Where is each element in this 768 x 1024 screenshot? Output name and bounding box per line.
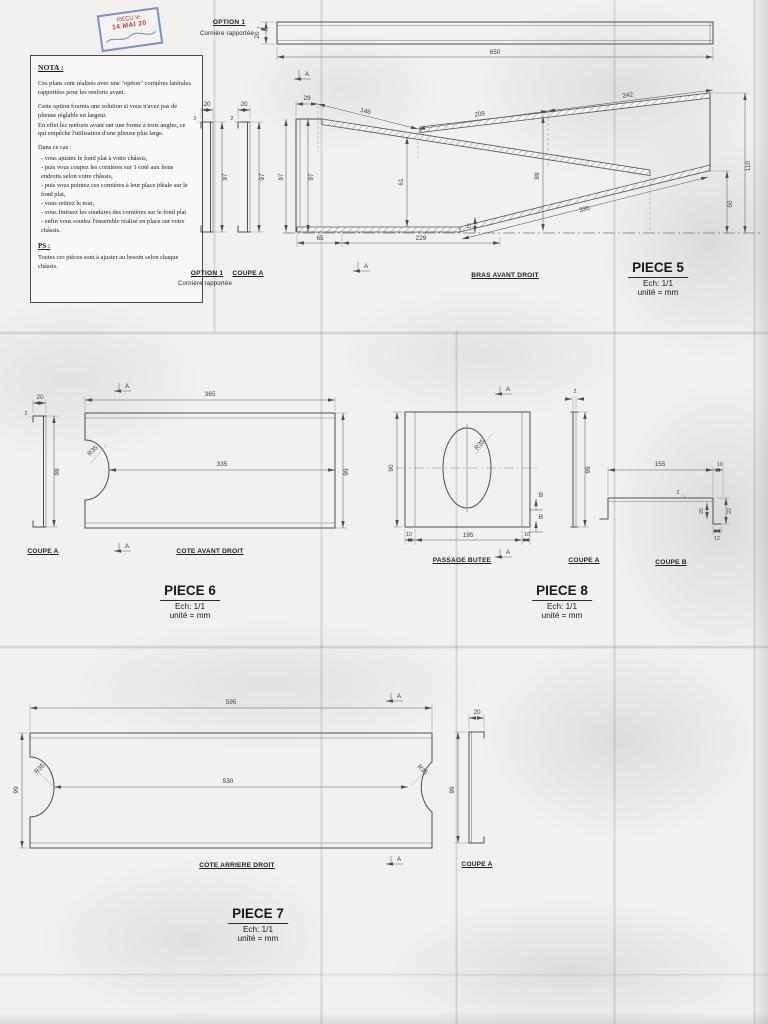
scanned-drawing-page: REÇU le 14 MAI 20 NOTA : Ces plans sont … (0, 0, 768, 1024)
dim-p6-coupe-width: 20 (36, 394, 44, 401)
piece8-unit: unité = mm (532, 611, 592, 620)
passage-butee-drawing: R35 90 10 195 10 B B A A (388, 386, 543, 557)
piece7-coupe-a-profile: 20 99 (449, 709, 484, 843)
dim-p7-height: 99 (13, 786, 20, 794)
dim-bras-top4: 242 (622, 91, 634, 99)
dim-p6-height: 99 (343, 468, 350, 476)
dim-profile2-thickness: 2 (231, 116, 234, 122)
piece5-title: PIECE 5 (628, 261, 688, 278)
piece6-coupe-a-profile: 20 2 99 (25, 394, 61, 527)
piece8-coupe-b-profile: 155 10 2 20 22 12 (600, 461, 733, 542)
cote-avant-droit-drawing: 365 335 R35 99 A A (85, 383, 350, 551)
dim-p6-coupe-height: 99 (54, 468, 61, 476)
dim-p7-mid: 530 (223, 778, 234, 785)
dim-bras-left2: 97 (308, 173, 315, 181)
section-marker-letter: A (506, 386, 511, 393)
cote-arriere-droit-drawing: 595 530 R35 R35 99 A A (13, 693, 432, 864)
dim-p8-height: 90 (388, 464, 395, 472)
dim-p8-coupea-height: 99 (585, 466, 592, 474)
dim-p8-coupeb-top: 155 (655, 461, 666, 468)
dim-bras-small: 15 (467, 223, 473, 229)
piece6-unit: unité = mm (160, 611, 220, 620)
dim-bar-thickness: 20 (254, 31, 261, 39)
dim-p8-coupea-thickness: 2 (574, 389, 577, 395)
corniere-bar-top-view: 20 650 A (254, 22, 713, 79)
dim-p6-top: 365 (205, 391, 216, 398)
cote-arriere-droit-label: COTE ARRIERE DROIT (199, 862, 275, 869)
bras-avant-droit-label: BRAS AVANT DROIT (471, 272, 539, 279)
section-marker-letter: A (364, 263, 369, 270)
dim-profile1-thickness: 2 (194, 116, 197, 122)
dim-bras-bot2: 229 (416, 235, 427, 242)
piece6-coupe-a-label: COUPE A (27, 548, 58, 555)
section-marker-letter: B (539, 514, 543, 521)
piece5-title-block: PIECE 5 Ech: 1/1 unité = mm (628, 259, 688, 297)
piece6-title: PIECE 6 (160, 584, 220, 601)
dim-p8-bot-right: 10 (524, 532, 530, 538)
dim-bras-mid1: 61 (398, 178, 405, 186)
dim-bras-top3: 205 (474, 110, 486, 118)
piece7-title: PIECE 7 (228, 907, 288, 924)
dim-bar-length: 650 (490, 49, 501, 56)
dim-bras-right2: 60 (727, 200, 734, 208)
dim-bras-mid2: 89 (534, 172, 541, 180)
dim-p7-coupe-height: 99 (449, 786, 456, 794)
section-marker-letter: A (125, 543, 130, 550)
dim-profile2-width: 20 (240, 101, 248, 108)
dim-p8-coupeb-v-outer: 22 (727, 508, 733, 514)
piece5-profile-option: 20 2 97 (194, 101, 229, 232)
profile1-sublabel: Cornière rapportée (178, 281, 232, 287)
technical-linework: 20 650 A 20 2 97 (0, 0, 768, 1024)
dim-p8-coupeb-v-inner: 20 (699, 508, 705, 514)
cote-avant-droit-label: COTE AVANT DROIT (176, 548, 243, 555)
profile1-label: OPTION 1 (191, 270, 223, 277)
section-marker-letter: A (397, 693, 402, 700)
dim-p7-top: 595 (226, 699, 237, 706)
dim-profile1-width: 20 (203, 101, 211, 108)
section-marker-letter: A (397, 856, 402, 863)
piece8-title: PIECE 8 (532, 584, 592, 601)
dim-bras-top1: 29 (303, 95, 311, 102)
option1-top-label: OPTION 1 (213, 19, 245, 26)
dim-p8-coupeb-foot: 12 (714, 536, 720, 542)
dim-p8-bot-mid: 195 (463, 532, 474, 539)
dim-p6-radius: R35 (86, 444, 100, 458)
piece8-title-block: PIECE 8 Ech: 1/1 unité = mm (532, 582, 592, 620)
piece7-unit: unité = mm (228, 934, 288, 943)
dim-profile1-height: 97 (222, 173, 229, 181)
piece5-scale: Ech: 1/1 (628, 279, 688, 288)
piece8-coupe-b-label: COUPE B (655, 559, 686, 566)
option1-top-sublabel: Cornière rapportée (200, 31, 254, 37)
dim-bras-left1: 97 (278, 173, 285, 181)
piece5-unit: unité = mm (628, 288, 688, 297)
piece7-title-block: PIECE 7 Ech: 1/1 unité = mm (228, 905, 288, 943)
dim-bras-bot1: 65 (316, 235, 324, 242)
dim-p7-coupe-width: 20 (473, 709, 481, 716)
piece7-scale: Ech: 1/1 (228, 925, 288, 934)
piece5-profile-coupe-a: 20 2 97 (231, 101, 266, 232)
profile2-label: COUPE A (232, 270, 263, 277)
dim-p8-coupeb-thickness: 2 (677, 490, 680, 496)
piece7-coupe-a-label: COUPE A (461, 861, 492, 868)
section-marker-letter: A (305, 71, 310, 78)
dim-profile2-height: 97 (259, 173, 266, 181)
dim-p8-coupeb-top-right: 10 (717, 462, 723, 468)
dim-p6-coupe-thickness: 2 (25, 411, 28, 417)
section-marker-letter: A (506, 549, 511, 556)
dim-bras-slope: 330 (579, 205, 591, 214)
passage-butee-label: PASSAGE BUTEE (433, 557, 492, 564)
bras-avant-droit-drawing: 29 146 205 242 97 97 61 89 15 65 229 (278, 90, 762, 271)
piece6-title-block: PIECE 6 Ech: 1/1 unité = mm (160, 582, 220, 620)
section-marker-letter: B (539, 492, 543, 499)
dim-p8-bot-left: 10 (406, 532, 412, 538)
dim-p7-radius-right: R35 (415, 763, 429, 777)
piece6-scale: Ech: 1/1 (160, 602, 220, 611)
piece8-coupe-a-label: COUPE A (568, 557, 599, 564)
piece8-coupe-a-profile: 2 99 (566, 389, 592, 527)
dim-p6-mid: 335 (217, 461, 228, 468)
piece8-scale: Ech: 1/1 (532, 602, 592, 611)
dim-bras-right1: 110 (745, 160, 752, 171)
section-marker-letter: A (125, 383, 130, 390)
